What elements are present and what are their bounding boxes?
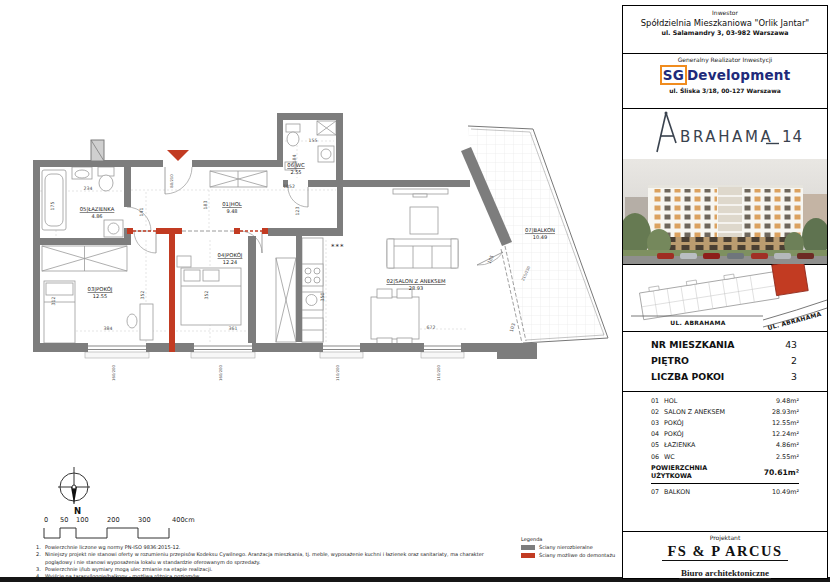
svg-text:110/200: 110/200 (335, 365, 340, 381)
svg-text:02|SALON Z ANEKSEM: 02|SALON Z ANEKSEM (386, 278, 446, 285)
svg-text:160/200: 160/200 (218, 365, 223, 381)
svg-text:06|WC: 06|WC (287, 162, 305, 169)
street-label-left: UL. ABRAHAMA (670, 319, 725, 326)
legend-swatch-red (521, 553, 535, 558)
designer-subtitle: Biuro architektoniczne (679, 568, 771, 579)
title-block-panel: Inwestor Spółdzielnia Mieszkaniowa "Orli… (622, 5, 828, 579)
street-label-right: UL. ABRAHAMA (767, 310, 822, 330)
room-areas-list: 01 HOL 9.48m² 02 SALON Z ANEKSEM 28.93m²… (623, 386, 827, 462)
project-logo-section: BRAHAMA 14 (623, 108, 827, 160)
compass-icon (58, 467, 90, 504)
svg-text:2.55: 2.55 (290, 169, 301, 175)
investor-address: ul. Salamandry 3, 03-982 Warszawa (623, 29, 827, 36)
svg-text:4.86: 4.86 (91, 213, 102, 219)
sg-development-logo: SGDevelopment (623, 67, 827, 83)
footnotes: 1. Powierzchnie liczone wg normy PN-ISO … (36, 544, 506, 580)
room-area-row: 03 POKÓJ 12.55m² (651, 417, 799, 428)
svg-text:384: 384 (104, 326, 113, 331)
legend-item-fixed-walls: Ściany nierozbieralne (521, 544, 631, 550)
footnote: 1. Powierzchnie liczone wg normy PN-ISO … (36, 544, 506, 551)
svg-text:9.48: 9.48 (226, 208, 237, 214)
svg-text:352: 352 (140, 291, 145, 300)
designer-logo: FS & P ARCUS (662, 543, 787, 561)
svg-text:183: 183 (203, 201, 208, 210)
svg-text:80/210: 80/210 (169, 174, 174, 188)
svg-text:28.93: 28.93 (409, 285, 423, 291)
floor-locator-section: UL. ABRAHAMA UL. ABRAHAMA (623, 264, 827, 332)
legend-swatch-gray (521, 545, 535, 550)
room-area-row: 05 ŁAZIENKA 4.86m² (651, 440, 799, 451)
svg-text:N: N (74, 506, 81, 516)
building-photo-section (623, 159, 827, 265)
svg-text:141: 141 (139, 208, 144, 217)
svg-text:155: 155 (309, 138, 318, 143)
logo-text: BRAHAMA (680, 128, 773, 146)
legend-label: Ściany możliwe do demontażu (539, 552, 615, 558)
svg-text:12.55: 12.55 (93, 293, 107, 299)
developer-label: Generalny Realizator Inwestycji (623, 56, 827, 63)
investor-section: Inwestor Spółdzielnia Mieszkaniowa "Orli… (623, 6, 827, 54)
room-areas-section: 01 HOL 9.48m² 02 SALON Z ANEKSEM 28.93m²… (623, 386, 827, 532)
cars (657, 253, 814, 259)
svg-text:200: 200 (107, 516, 120, 524)
svg-text:103: 103 (509, 323, 516, 333)
svg-text:105: 105 (487, 254, 495, 264)
svg-text:123: 123 (295, 207, 300, 216)
svg-text:01|HOL: 01|HOL (222, 201, 242, 208)
designer-section: Projektant FS & P ARCUS Biuro architekto… (623, 531, 827, 579)
abrahama14-logo: BRAHAMA 14 (635, 108, 815, 156)
svg-text:10.49: 10.49 (533, 234, 547, 240)
footnote: 3. Powierzchnie i/lub wymiary mogą ulec … (36, 566, 506, 573)
svg-text:04|POKÓJ: 04|POKÓJ (218, 252, 243, 259)
svg-text:0: 0 (44, 516, 48, 524)
scale-bar (44, 528, 169, 538)
balcony-area-row: 07 BALKON 10.49m² (651, 488, 799, 496)
unit-info-section: NR MIESZKANIA 43 PIĘTRO 2 LICZBA POKOI 3 (623, 331, 827, 392)
svg-text:100: 100 (76, 516, 89, 524)
building-rendering (623, 159, 827, 264)
svg-text:***: *** (331, 243, 345, 251)
svg-text:234: 234 (84, 186, 93, 191)
investor-label: Inwestor (623, 9, 827, 16)
room-area-row: 02 SALON Z ANEKSEM 28.93m² (651, 406, 799, 417)
legend-label: Ściany nierozbieralne (539, 544, 593, 550)
svg-text:05|ŁAZIENKA: 05|ŁAZIENKA (80, 206, 115, 213)
svg-text:110/200: 110/200 (436, 365, 441, 381)
designer-label: Projektant (623, 534, 827, 541)
usable-area-total: POWIERZCHNIA UŻYTKOWA 70.61m² (651, 463, 799, 484)
svg-text:175: 175 (50, 202, 55, 211)
svg-text:400cm: 400cm (172, 516, 195, 524)
logo-number: 14 (782, 128, 803, 146)
entrance-marker (167, 150, 189, 161)
floor-locator-map: UL. ABRAHAMA UL. ABRAHAMA (623, 264, 827, 330)
legend-title: Legenda (521, 536, 631, 542)
footnote: 2. Niniejszy projekt nie stanowi oferty … (36, 551, 506, 566)
room-area-row: 01 HOL 9.48m² (651, 395, 799, 406)
svg-text:12.24: 12.24 (223, 259, 237, 265)
svg-text:350: 350 (320, 293, 325, 302)
highlighted-unit (772, 264, 808, 296)
svg-text:03|POKÓJ: 03|POKÓJ (88, 286, 113, 293)
svg-text:07|BALKON: 07|BALKON (525, 227, 555, 234)
svg-text:312: 312 (51, 297, 56, 306)
logo-a-glyph (657, 112, 676, 153)
developer-address: ul. Śliska 3/18, 00-127 Warszawa (623, 87, 827, 94)
svg-text:361: 361 (229, 326, 238, 331)
unit-info-row: LICZBA POKOI 3 (623, 368, 827, 384)
svg-text:672: 672 (427, 325, 436, 330)
usable-area-value: 70.61m² (764, 468, 799, 477)
svg-text:300: 300 (138, 516, 151, 524)
svg-text:352: 352 (204, 291, 209, 300)
svg-text:1052: 1052 (283, 184, 295, 189)
room-area-row: 06 WC 2.55m² (651, 451, 799, 462)
unit-info-row: NR MIESZKANIA 43 (623, 336, 827, 352)
legend-item-demountable-walls: Ściany możliwe do demontażu (521, 552, 631, 558)
investor-name: Spółdzielnia Mieszkaniowa "Orlik Jantar" (623, 18, 827, 28)
room-area-row: 04 POKÓJ 12.24m² (651, 429, 799, 440)
legend: Legenda Ściany nierozbieralne Ściany moż… (521, 536, 631, 560)
floorplan-drawing: 23417580/2101411831052123155184352352312… (0, 0, 622, 583)
svg-text:50: 50 (60, 516, 68, 524)
svg-text:160/200: 160/200 (111, 365, 116, 381)
unit-info-row: PIĘTRO 2 (623, 352, 827, 368)
developer-section: Generalny Realizator Inwestycji SGDevelo… (623, 53, 827, 109)
floorplan-sheet: { "colors": { "wall_gray": "#7d7d7d", "w… (0, 0, 830, 583)
